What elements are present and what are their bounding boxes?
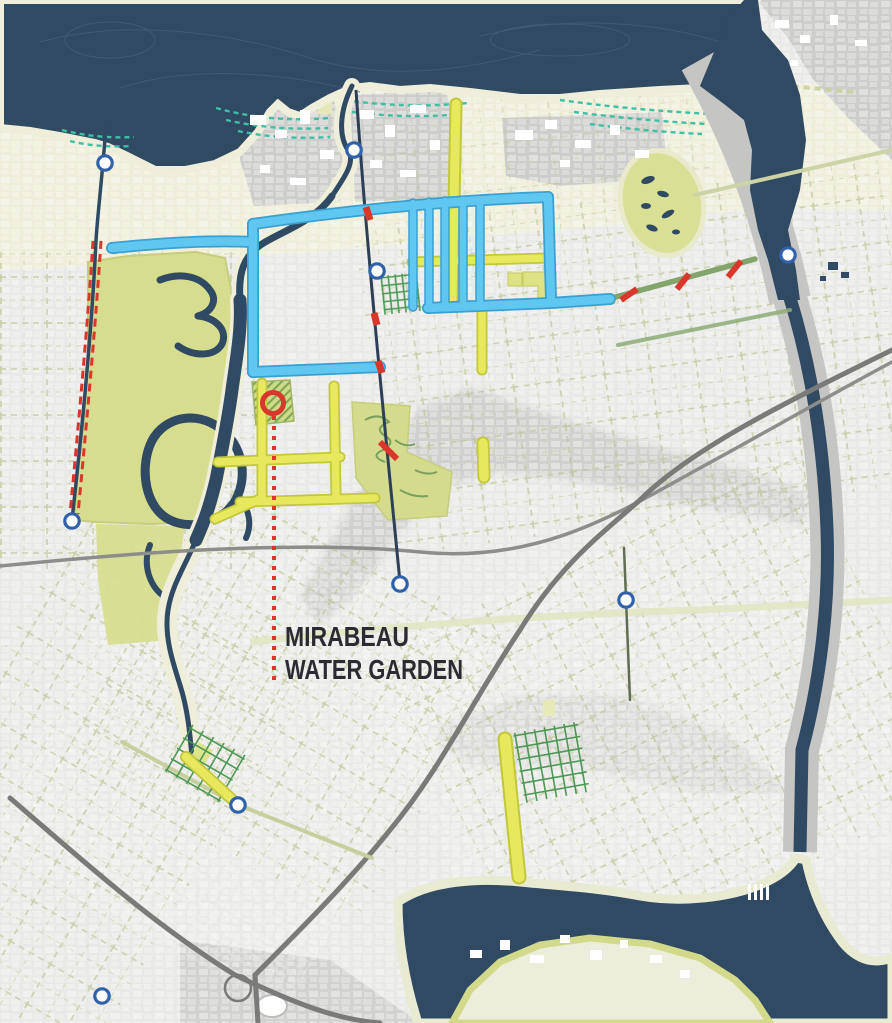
network-node-marker [231, 798, 245, 812]
map-label-line1: MIRABEAU [285, 621, 409, 652]
network-node-marker [95, 989, 109, 1003]
network-node-marker [393, 577, 407, 591]
network-node-marker [65, 514, 79, 528]
network-node-marker [619, 593, 633, 607]
map-canvas: MIRABEAU WATER GARDEN [0, 0, 892, 1023]
network-node-marker [370, 264, 384, 278]
network-node-marker [347, 143, 361, 157]
mirabeau-water-garden-plan-map: MIRABEAU WATER GARDEN [0, 0, 892, 1023]
network-node-marker [98, 156, 112, 170]
map-label-line2: WATER GARDEN [285, 654, 463, 685]
network-node-marker [781, 248, 795, 262]
